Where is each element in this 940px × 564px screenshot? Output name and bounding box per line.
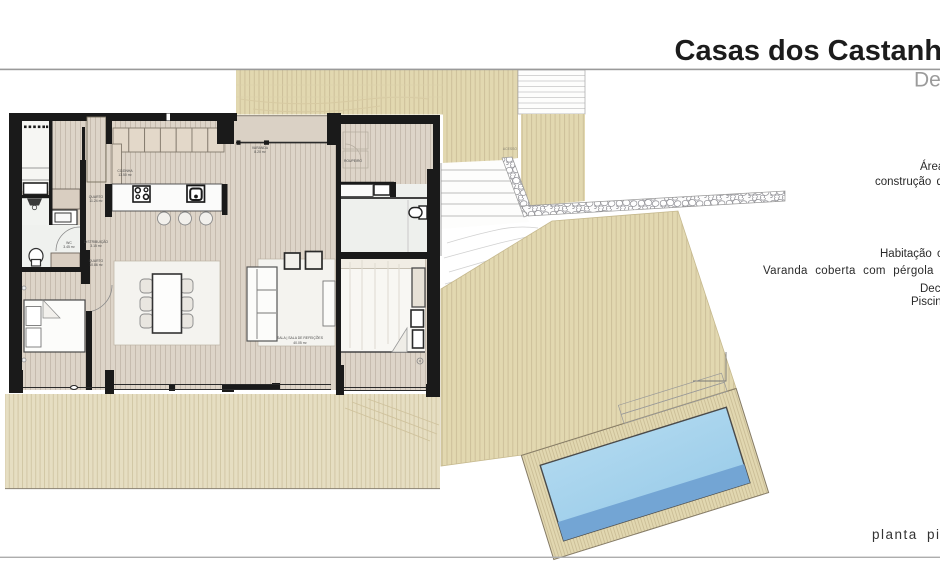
svg-text:40.05 m²: 40.05 m²: [293, 341, 307, 345]
svg-text:planta piso: planta piso: [872, 527, 940, 542]
svg-text:13.50 m²: 13.50 m²: [118, 173, 132, 177]
svg-text:11.24 m²: 11.24 m²: [89, 199, 103, 203]
svg-text:ACESSO: ACESSO: [503, 147, 517, 151]
svg-text:8.20 m²: 8.20 m²: [254, 150, 266, 154]
svg-text:Habitação com 3 quartos: Habitação com 3 quartos: [880, 248, 940, 260]
svg-text:Deck de madeira: Deck de madeira: [920, 283, 940, 295]
svg-text:Varanda coberta com pérgola de: Varanda coberta com pérgola de madeira: [763, 265, 940, 277]
svg-text:Deck: Deck: [914, 69, 940, 92]
svg-text:ROUPEIRO: ROUPEIRO: [344, 159, 362, 163]
svg-text:10.86 m²: 10.86 m²: [89, 263, 103, 267]
svg-text:3.45 m²: 3.45 m²: [63, 245, 75, 249]
svg-text:construção de 2015: construção de 2015: [875, 176, 940, 188]
svg-text:3.15 m²: 3.15 m²: [90, 244, 102, 248]
svg-text:Casas dos Castanheiros: Casas dos Castanheiros: [675, 35, 940, 67]
svg-text:SALA | SALA DE REFEIÇÕES: SALA | SALA DE REFEIÇÕES: [277, 335, 324, 340]
svg-text:Área do lote: Área do lote: [920, 160, 940, 173]
svg-text:Piscina privada: Piscina privada: [911, 296, 940, 308]
